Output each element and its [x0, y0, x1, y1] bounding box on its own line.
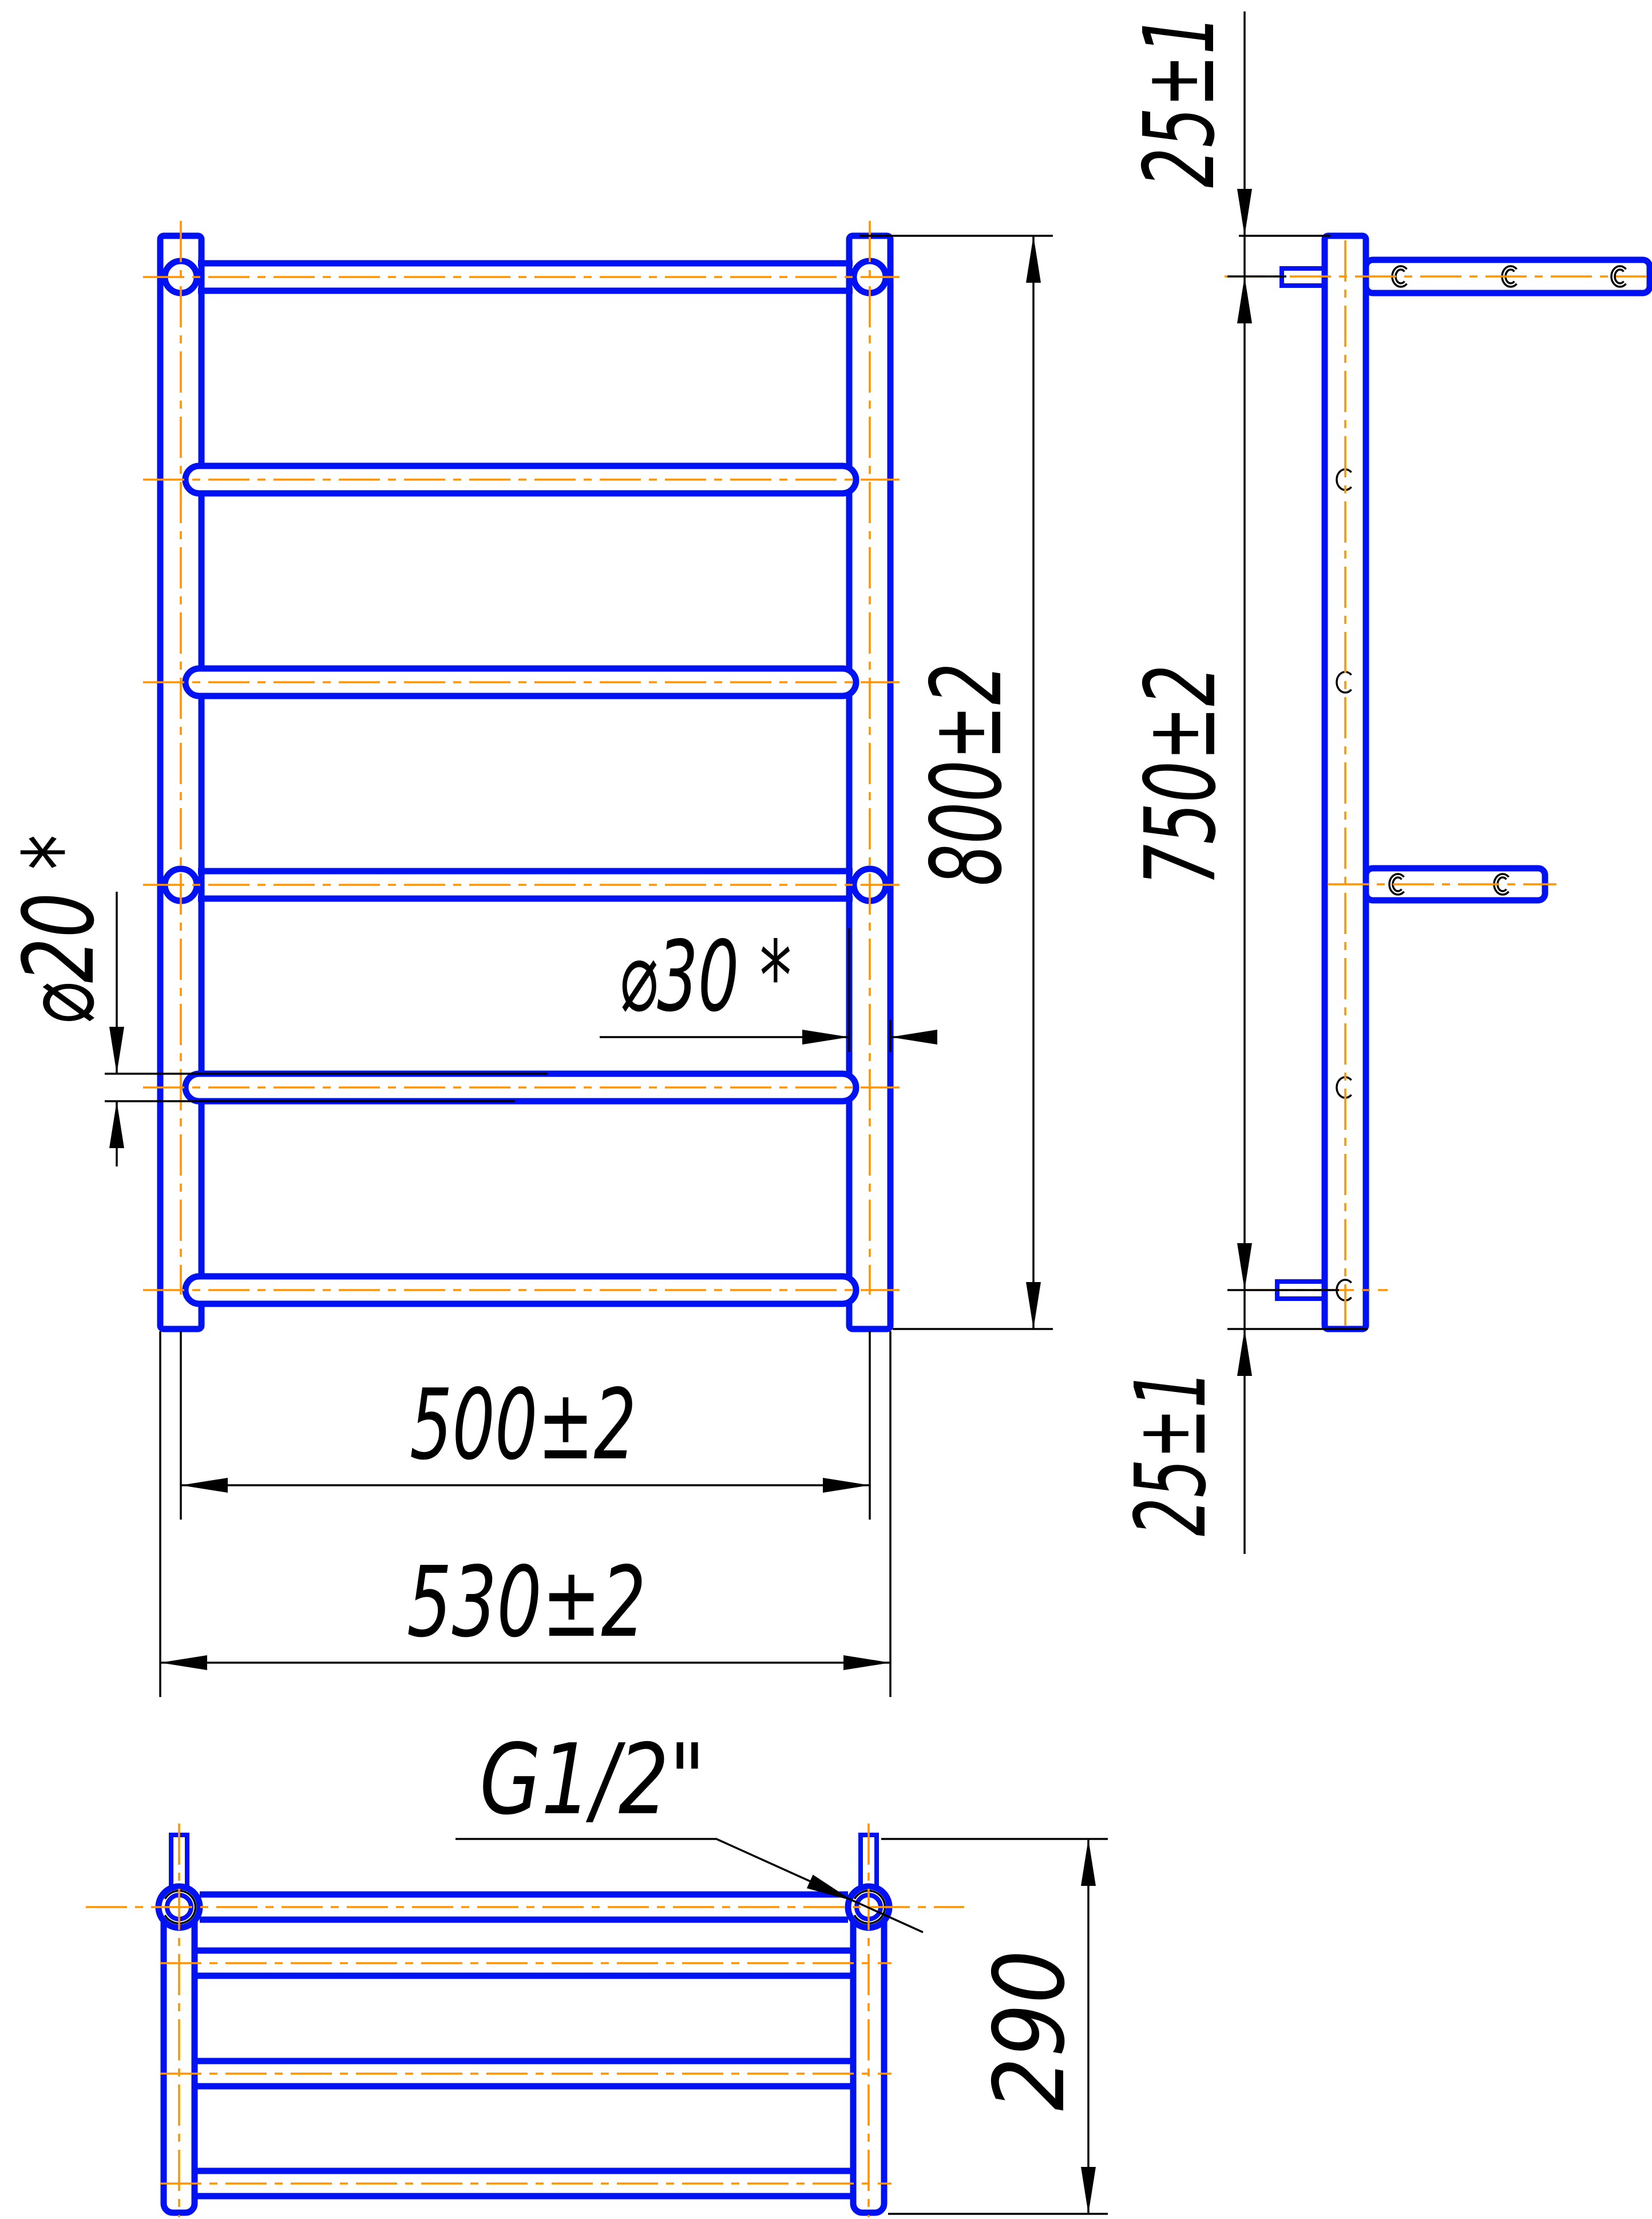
height-overall-label: 800±2	[910, 663, 1024, 886]
technical-drawing: ⌀20 * ⌀30 * 500±2 530±2 800±	[0, 0, 1652, 2219]
side-centerlines	[1225, 240, 1647, 1334]
width-centers-label: 500±2	[410, 1368, 636, 1482]
dimensions: ⌀20 * ⌀30 * 500±2 530±2 800±	[3, 11, 1368, 2214]
dim-depth: 290	[881, 1839, 1108, 2214]
bracket-span-label: 750±2	[1124, 664, 1238, 886]
drawing-sheet: ⌀20 * ⌀30 * 500±2 530±2 800±	[0, 0, 1652, 2219]
front-centerlines	[143, 221, 900, 1295]
bottom-bar-rows	[193, 1894, 854, 2196]
bar-diameter-label: ⌀20 *	[3, 834, 116, 1026]
offset-bottom-label: 25±1	[1115, 1370, 1228, 1536]
front-view	[143, 221, 900, 1329]
callout-thread: G1/2"	[455, 1723, 923, 1932]
post-diameter-label: ⌀30 *	[619, 920, 792, 1034]
dim-width-centers: 500±2	[181, 1331, 870, 1520]
thread-label: G1/2"	[480, 1723, 706, 1837]
arm-screw-holes	[1389, 266, 1626, 895]
bottom-centerlines	[86, 1824, 964, 2217]
depth-label: 290	[973, 1950, 1087, 2111]
width-overall-label: 530±2	[407, 1546, 646, 1659]
side-view	[1225, 236, 1650, 1334]
bottom-view	[86, 1824, 964, 2217]
offset-top-label: 25±1	[1123, 14, 1237, 188]
